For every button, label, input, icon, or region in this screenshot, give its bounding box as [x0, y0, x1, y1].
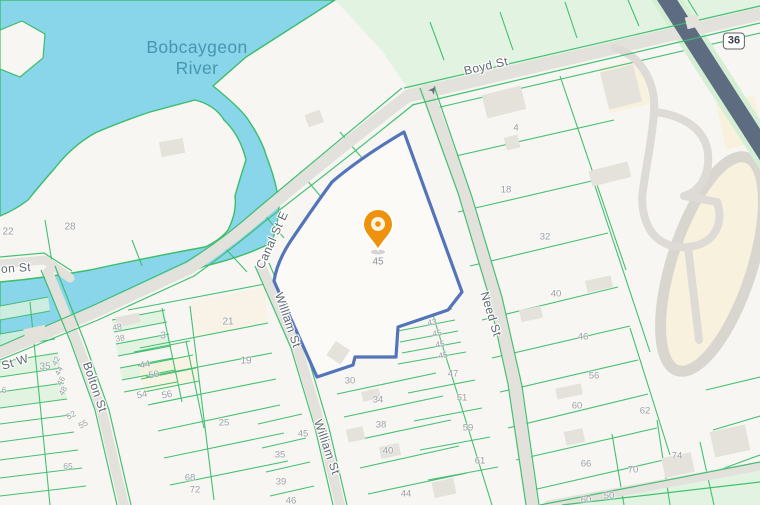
- water-label-line1: Bobcaygeon: [146, 37, 247, 58]
- property-marker-pin[interactable]: [360, 206, 396, 256]
- marker-pin-icon: [360, 206, 396, 256]
- water-body-label: Bobcaygeon River: [146, 37, 247, 79]
- marker-address-label: 45: [372, 257, 383, 268]
- map-canvas[interactable]: Boyd StCanal St EWilliam StWilliam StNee…: [0, 0, 760, 505]
- highway-36-shield-text: 36: [728, 35, 740, 47]
- water-label-line2: River: [146, 58, 247, 79]
- highway-36-shield: 36: [723, 33, 745, 50]
